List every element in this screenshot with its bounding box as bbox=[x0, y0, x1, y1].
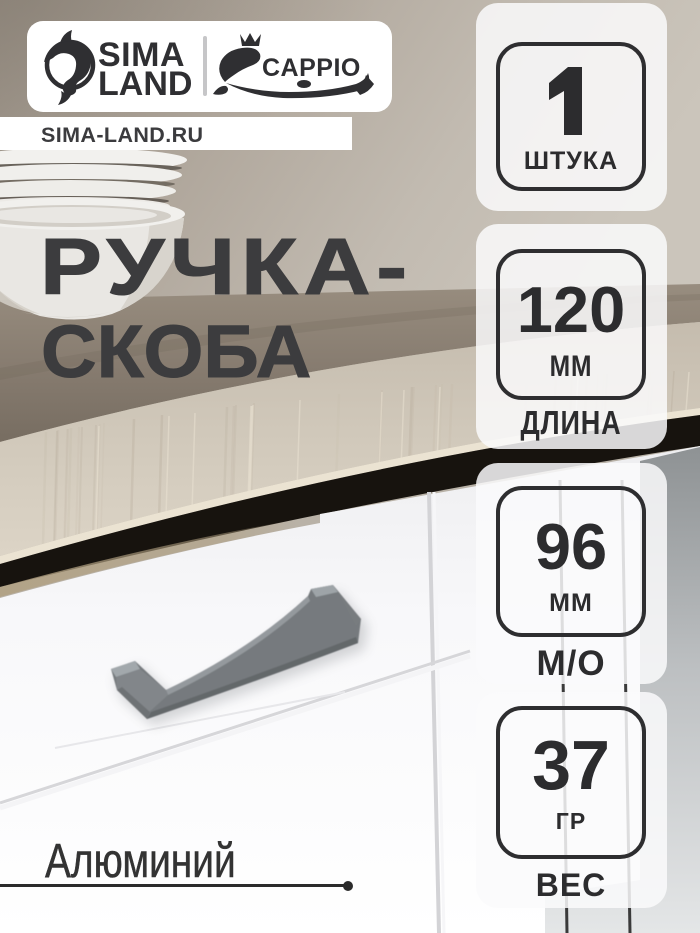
svg-text:LAND: LAND bbox=[98, 65, 192, 103]
svg-text:CAPPIO: CAPPIO bbox=[262, 54, 361, 82]
